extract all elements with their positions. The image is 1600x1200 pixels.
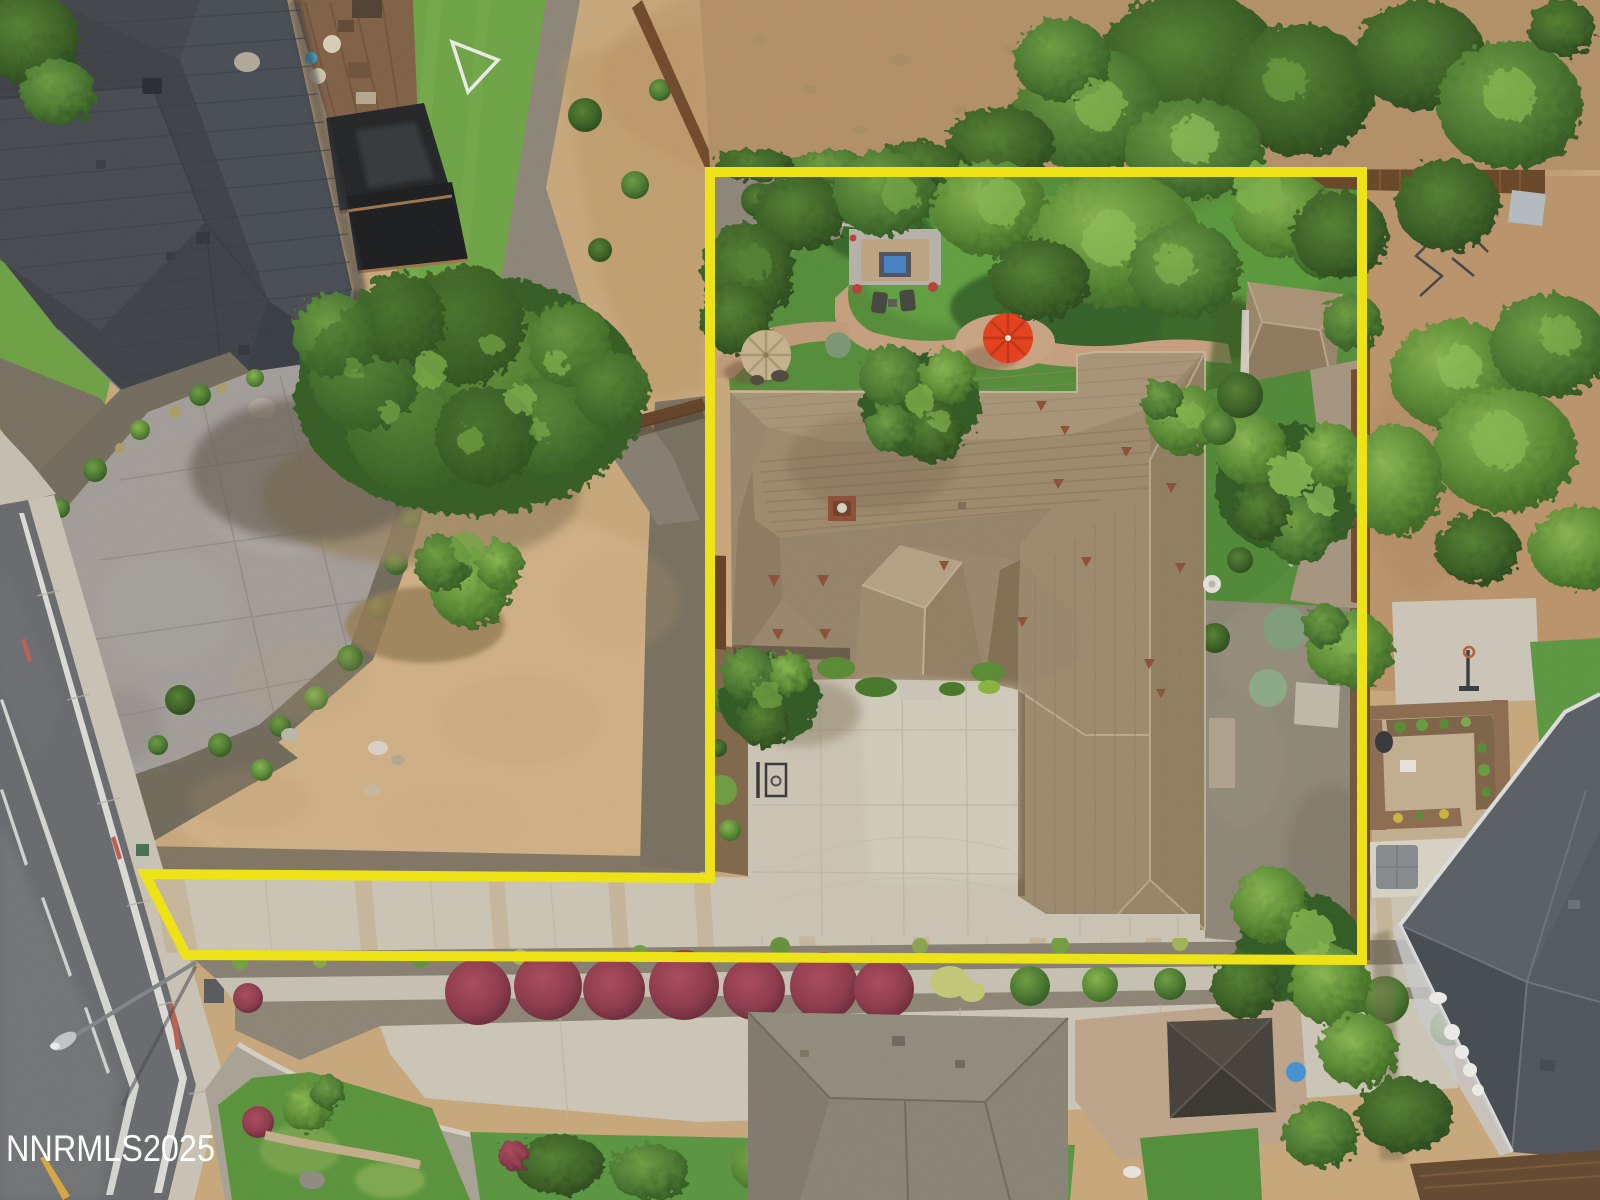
svg-text:NNRMLS2025: NNRMLS2025	[6, 1128, 215, 1169]
